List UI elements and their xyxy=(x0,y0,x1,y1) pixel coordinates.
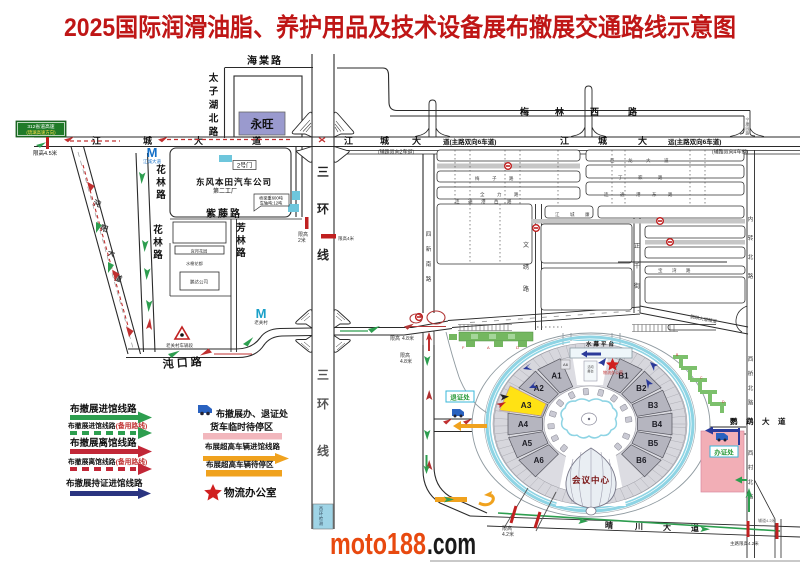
svg-text:四: 四 xyxy=(426,231,432,238)
svg-text:辅道4.2米: 辅道4.2米 xyxy=(758,517,776,523)
svg-text:湖: 湖 xyxy=(209,99,219,111)
svg-text:B3: B3 xyxy=(648,401,659,410)
svg-text:(琉璃高速方向): (琉璃高速方向) xyxy=(26,129,56,136)
svg-text:312省道高速: 312省道高速 xyxy=(27,123,54,130)
svg-text:(辅路双向2车道): (辅路双向2车道) xyxy=(378,149,414,156)
svg-text:路: 路 xyxy=(236,247,246,259)
svg-text:路: 路 xyxy=(209,126,219,138)
svg-text:梅: 梅 xyxy=(520,106,529,117)
svg-text:路: 路 xyxy=(628,106,638,117)
svg-text:海棠路: 海棠路 xyxy=(247,54,283,67)
svg-text:连: 连 xyxy=(455,198,460,205)
svg-text:丁: 丁 xyxy=(618,175,623,180)
svg-text:4.8米: 4.8米 xyxy=(400,358,412,365)
svg-text:限高: 限高 xyxy=(298,231,308,238)
svg-text:线: 线 xyxy=(317,443,329,458)
svg-text:检: 检 xyxy=(319,516,323,521)
svg-text:B2: B2 xyxy=(636,384,647,393)
svg-text:力: 力 xyxy=(497,191,502,198)
svg-text:芳: 芳 xyxy=(236,222,246,234)
svg-text:南: 南 xyxy=(426,260,432,268)
svg-text:绣: 绣 xyxy=(523,263,529,271)
svg-text:布展超高车辆进馆线路: 布展超高车辆进馆线路 xyxy=(205,441,280,451)
svg-text:北: 北 xyxy=(748,478,754,486)
svg-text:2025国际润滑油脂、养护用品及技术设备展布撤展交通路线示意: 2025国际润滑油脂、养护用品及技术设备展布撤展交通路线示意图 xyxy=(64,13,736,42)
svg-text:B5: B5 xyxy=(648,439,659,448)
svg-text:大: 大 xyxy=(412,135,421,146)
svg-text:2米: 2米 xyxy=(298,237,306,244)
svg-text:.com: .com xyxy=(427,526,476,561)
svg-text:大: 大 xyxy=(638,135,647,146)
svg-text:物流办公室: 物流办公室 xyxy=(603,369,623,375)
svg-text:通: 通 xyxy=(620,191,625,198)
svg-text:限高4米: 限高4米 xyxy=(338,235,355,242)
svg-text:限高4.5米: 限高4.5米 xyxy=(33,149,58,157)
svg-text:运(主路双向6车道): 运(主路双向6车道) xyxy=(668,137,721,146)
svg-text:水幕平台: 水幕平台 xyxy=(586,340,616,348)
svg-text:布撤展进馆线路(备用路线): 布撤展进馆线路(备用路线) xyxy=(68,421,147,430)
svg-text:西: 西 xyxy=(590,107,599,117)
svg-text:港: 港 xyxy=(481,198,486,205)
svg-text:A5: A5 xyxy=(522,439,533,448)
svg-text:道: 道 xyxy=(691,523,699,533)
svg-text:2号门: 2号门 xyxy=(237,162,252,170)
svg-text:家: 家 xyxy=(638,174,643,180)
svg-text:moto188: moto188 xyxy=(330,526,426,561)
svg-text:三: 三 xyxy=(317,368,329,382)
svg-text:林: 林 xyxy=(156,177,166,189)
svg-text:北: 北 xyxy=(209,113,219,125)
svg-text:测: 测 xyxy=(319,521,323,526)
svg-text:西: 西 xyxy=(748,356,754,363)
svg-text:紫藤路: 紫藤路 xyxy=(206,207,242,220)
svg-text:街: 街 xyxy=(634,282,640,290)
svg-text:西: 西 xyxy=(319,506,323,511)
svg-text:路: 路 xyxy=(523,285,529,293)
svg-text:B6: B6 xyxy=(636,456,647,465)
svg-text:4.2米: 4.2米 xyxy=(502,531,514,538)
svg-text:路: 路 xyxy=(426,275,432,283)
svg-text:连: 连 xyxy=(604,191,609,198)
svg-text:道: 道 xyxy=(664,157,669,164)
svg-text:梅: 梅 xyxy=(475,175,480,182)
svg-text:江城大道: 江城大道 xyxy=(143,158,161,165)
svg-text:桥: 桥 xyxy=(748,370,754,378)
svg-text:通: 通 xyxy=(468,198,473,205)
svg-text:老关村车辆段: 老关村车辆段 xyxy=(166,342,193,349)
svg-text:4.8米: 4.8米 xyxy=(402,335,414,342)
svg-text:转: 转 xyxy=(748,234,754,242)
svg-text:活动: 活动 xyxy=(587,364,593,369)
svg-text:A: A xyxy=(487,345,490,350)
svg-text:A4: A4 xyxy=(518,420,529,429)
svg-text:全: 全 xyxy=(480,191,485,197)
svg-text:文: 文 xyxy=(523,241,529,249)
svg-text:路: 路 xyxy=(668,191,673,198)
svg-text:港: 港 xyxy=(636,191,641,198)
svg-text:宝: 宝 xyxy=(658,267,663,273)
svg-text:路: 路 xyxy=(514,191,519,198)
svg-text:M: M xyxy=(256,306,267,321)
svg-text:车轴吨:12吨: 车轴吨:12吨 xyxy=(260,200,283,207)
svg-text:江: 江 xyxy=(344,135,353,146)
svg-text:江: 江 xyxy=(555,211,560,218)
svg-text:退证处: 退证处 xyxy=(450,393,470,402)
svg-text:内: 内 xyxy=(748,215,754,223)
svg-text:第二工厂: 第二工厂 xyxy=(213,187,237,195)
svg-text:A1: A1 xyxy=(551,372,562,381)
svg-text:鹦: 鹦 xyxy=(729,416,738,426)
svg-text:布撤展进馆线路: 布撤展进馆线路 xyxy=(69,403,137,415)
svg-text:廉: 廉 xyxy=(585,211,590,218)
svg-text:晴: 晴 xyxy=(605,520,613,530)
svg-text:环: 环 xyxy=(317,202,329,216)
svg-text:林: 林 xyxy=(236,235,246,247)
svg-text:老关村: 老关村 xyxy=(254,319,268,326)
svg-text:会议中心: 会议中心 xyxy=(571,475,610,485)
svg-text:三: 三 xyxy=(317,165,329,179)
svg-text:北: 北 xyxy=(748,253,754,261)
svg-text:北: 北 xyxy=(748,384,754,392)
svg-text:路: 路 xyxy=(153,249,163,261)
svg-text:大: 大 xyxy=(194,135,203,146)
svg-text:道: 道 xyxy=(252,135,261,146)
svg-text:花: 花 xyxy=(156,164,166,176)
svg-text:路: 路 xyxy=(156,189,166,201)
svg-text:林: 林 xyxy=(153,237,163,249)
svg-text:(辅路双向4车道): (辅路双向4车道) xyxy=(712,149,748,156)
svg-text:限高: 限高 xyxy=(400,352,410,359)
svg-text:巨: 巨 xyxy=(610,158,615,163)
svg-text:鹉: 鹉 xyxy=(746,416,754,426)
svg-text:城: 城 xyxy=(380,135,389,146)
svg-text:主路限高4.2米: 主路限高4.2米 xyxy=(730,540,759,547)
svg-text:路: 路 xyxy=(507,198,512,205)
svg-text:鹏达公司: 鹏达公司 xyxy=(190,279,208,286)
svg-text:环: 环 xyxy=(319,512,323,516)
svg-text:环: 环 xyxy=(317,397,329,411)
svg-text:川: 川 xyxy=(634,522,643,531)
svg-text:B4: B4 xyxy=(652,420,663,429)
svg-text:大: 大 xyxy=(762,416,770,426)
svg-text:线: 线 xyxy=(317,247,329,262)
svg-text:大: 大 xyxy=(646,157,651,164)
svg-text:宁: 宁 xyxy=(746,117,750,122)
svg-text:花: 花 xyxy=(153,224,163,236)
svg-text:城: 城 xyxy=(598,135,607,146)
svg-text:湾: 湾 xyxy=(672,267,677,274)
svg-text:路: 路 xyxy=(746,131,750,136)
svg-text:园: 园 xyxy=(746,126,750,131)
svg-text:新: 新 xyxy=(426,245,432,253)
svg-text:M: M xyxy=(147,145,158,160)
svg-text:宜邦花园: 宜邦花园 xyxy=(191,248,208,255)
svg-text:东: 东 xyxy=(652,191,657,197)
svg-text:路: 路 xyxy=(686,267,691,274)
svg-text:布撤展离馆线路: 布撤展离馆线路 xyxy=(69,437,137,449)
svg-text:布撤展持证进馆线路: 布撤展持证进馆线路 xyxy=(65,478,143,488)
svg-text:物流办公室: 物流办公室 xyxy=(224,486,277,499)
svg-text:康: 康 xyxy=(746,122,750,127)
svg-text:子: 子 xyxy=(492,175,497,181)
svg-text:道(主路双向6车道): 道(主路双向6车道) xyxy=(443,137,496,146)
svg-text:东风本田汽车公司: 东风本田汽车公司 xyxy=(196,177,272,187)
svg-text:道: 道 xyxy=(778,416,786,426)
svg-text:路: 路 xyxy=(658,174,663,181)
svg-text:水榭花都: 水榭花都 xyxy=(186,260,204,267)
svg-text:A3: A3 xyxy=(521,400,532,410)
svg-text:路: 路 xyxy=(748,399,754,407)
svg-text:限高: 限高 xyxy=(390,335,400,342)
svg-text:太: 太 xyxy=(209,72,219,84)
svg-text:西: 西 xyxy=(748,450,754,457)
svg-text:林: 林 xyxy=(555,106,565,117)
svg-text:布撤展办、退证处: 布撤展办、退证处 xyxy=(215,408,289,419)
svg-text:舞台: 舞台 xyxy=(587,369,593,374)
svg-text:A6: A6 xyxy=(534,456,545,465)
svg-text:A2: A2 xyxy=(534,384,545,393)
svg-text:D: D xyxy=(516,345,519,350)
svg-text:布展超高车辆待停区: 布展超高车辆待停区 xyxy=(206,459,274,469)
svg-text:货车临时待停区: 货车临时待停区 xyxy=(210,421,273,432)
svg-text:正: 正 xyxy=(634,243,640,250)
svg-text:村: 村 xyxy=(748,464,754,472)
svg-text:路: 路 xyxy=(748,272,754,280)
svg-text:城: 城 xyxy=(570,211,575,218)
svg-text:办证处: 办证处 xyxy=(714,448,734,457)
svg-text:龙: 龙 xyxy=(628,157,633,164)
svg-text:千: 千 xyxy=(634,262,640,270)
svg-text:限高: 限高 xyxy=(502,525,512,532)
svg-text:子: 子 xyxy=(209,87,219,98)
svg-text:江: 江 xyxy=(560,135,569,146)
svg-text:A6: A6 xyxy=(563,362,569,367)
svg-text:路: 路 xyxy=(509,175,514,182)
svg-text:布撤展离馆线路(备用路线): 布撤展离馆线路(备用路线) xyxy=(68,457,147,466)
svg-text:永旺: 永旺 xyxy=(250,117,274,131)
